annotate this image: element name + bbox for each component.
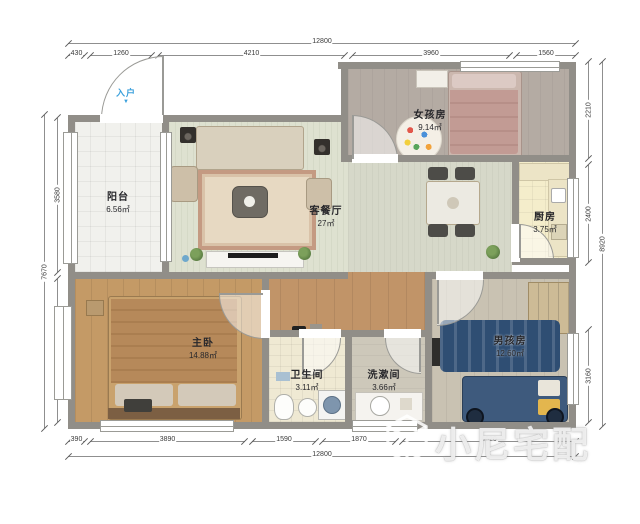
dim-right-seg2: 2400 (588, 165, 589, 262)
kitchen-sink (551, 188, 566, 203)
dim-right-seg3: 3160 (588, 330, 589, 422)
master-door-leaf (219, 293, 263, 295)
dim-top-total: 12800 (68, 43, 576, 44)
boy-door-opening (436, 271, 483, 280)
watermark: 小尼宅配 (384, 414, 591, 469)
dining-chair-sw (428, 224, 448, 237)
dim-bottom-seg1: 390 (68, 441, 85, 442)
dim-top-seg1: 430 (68, 55, 85, 56)
room-name: 男孩房 (478, 332, 542, 347)
master-door-opening (261, 290, 270, 338)
dining-table (426, 181, 480, 225)
dim-label: 12800 (311, 38, 332, 45)
dim-label: 2210 (586, 100, 593, 120)
dim-label: 3890 (159, 436, 177, 443)
room-name: 卫生间 (275, 366, 339, 381)
room-area: 27㎡ (294, 218, 358, 229)
hallway-floor (262, 272, 432, 337)
floor-plan-canvas: 12800 430 1260 4210 3960 1560 390 3890 1… (0, 0, 640, 524)
entry-label: 入户 ▼ (104, 86, 148, 105)
room-label-bath: 卫生间 3.11㎡ (275, 366, 339, 393)
entry-door-leaf (162, 57, 164, 115)
master-nightstand (86, 300, 104, 316)
dining-chair-se (455, 224, 475, 237)
entry-arrow-icon: ▼ (104, 99, 148, 105)
dining-chair-ne (455, 167, 475, 180)
bath-door-opening (299, 329, 341, 338)
master-bay-window (54, 306, 72, 400)
room-area: 3.66㎡ (352, 382, 416, 393)
dim-label: 12800 (311, 451, 332, 458)
room-name: 洗漱间 (352, 366, 416, 381)
room-area: 12.60㎡ (478, 348, 542, 359)
dim-label: 1870 (350, 436, 368, 443)
room-area: 14.88㎡ (171, 350, 235, 361)
wash-door-opening (384, 329, 421, 338)
dim-label: 430 (70, 50, 84, 57)
wall-bath-wash-divider (345, 337, 352, 422)
plant-dining (486, 245, 500, 259)
wall-wash-boy-divider (425, 279, 432, 422)
speaker-right (314, 139, 330, 155)
dim-label: 8920 (600, 234, 607, 254)
girl-top-window (460, 61, 560, 72)
dim-top-seg3: 4210 (158, 55, 345, 56)
dim-top-seg5: 1560 (516, 55, 576, 56)
coffee-table (232, 186, 268, 218)
plant-right (298, 247, 311, 260)
room-area: 3.11㎡ (275, 382, 339, 393)
room-label-balcony: 阳台 6.56㎡ (86, 188, 150, 215)
room-area: 3.75㎡ (513, 224, 577, 235)
dim-left-seg1: 3580 (57, 118, 58, 272)
room-name: 女孩房 (398, 106, 462, 121)
wall-kitchen-bottom (512, 258, 576, 265)
wall-hallway-top (269, 272, 348, 279)
dim-label: 2400 (586, 204, 593, 224)
dim-bottom-seg2: 3890 (90, 441, 245, 442)
girl-door-opening (352, 154, 398, 163)
balcony-sliding-window (160, 132, 172, 262)
toilet (274, 394, 294, 420)
bath-sink (298, 398, 317, 417)
dim-right-seg1: 2210 (588, 62, 589, 158)
bath-washing-machine (318, 390, 346, 420)
wash-sink (370, 396, 390, 416)
master-pillow-right (178, 384, 236, 406)
room-label-girl: 女孩房 9.14㎡ (398, 106, 462, 133)
dining-table-setting (447, 197, 459, 209)
room-label-boy: 男孩房 12.60㎡ (478, 332, 542, 359)
dim-label: 1260 (112, 50, 130, 57)
sofa (196, 126, 304, 170)
girl-door-leaf (352, 115, 354, 159)
dim-label: 7670 (42, 262, 49, 282)
boy-pillow-white (538, 380, 560, 396)
balcony-window (63, 132, 78, 264)
room-name: 客餐厅 (294, 202, 358, 217)
girl-bed-pillow (452, 74, 516, 88)
master-bench (124, 399, 152, 412)
room-name: 厨房 (513, 208, 577, 223)
dim-bottom-seg3: 1590 (252, 441, 316, 442)
boy-window (567, 333, 579, 405)
watermark-text: 小尼宅配 (435, 416, 591, 468)
boy-door-leaf (437, 280, 439, 324)
wash-door-leaf (419, 338, 421, 372)
room-name: 阳台 (86, 188, 150, 203)
wall-master-top (68, 272, 269, 279)
girl-dresser (416, 70, 448, 88)
dim-top-seg4: 3960 (352, 55, 510, 56)
dim-label: 4210 (243, 50, 261, 57)
entry-text: 入户 (104, 86, 148, 99)
plant-left (190, 248, 203, 261)
dim-top-seg2: 1260 (90, 55, 152, 56)
entry-door-opening (100, 114, 163, 123)
dim-right-total: 8920 (602, 62, 603, 426)
room-label-master: 主卧 14.88㎡ (171, 334, 235, 361)
dim-label: 1560 (537, 50, 555, 57)
room-label-wash: 洗漱间 3.66㎡ (352, 366, 416, 393)
dim-label: 3160 (586, 366, 593, 386)
dim-label: 3580 (55, 185, 62, 205)
tv (228, 253, 278, 258)
wall-living-girl-divider (341, 62, 348, 162)
dim-left-total: 7670 (44, 115, 45, 428)
armchair-left (170, 166, 198, 202)
room-label-kitchen: 厨房 3.75㎡ (513, 208, 577, 235)
room-area: 6.56㎡ (86, 204, 150, 215)
dim-label: 1590 (275, 436, 293, 443)
watermark-cube-icon (384, 414, 430, 469)
master-bottom-window (100, 420, 234, 432)
dim-label: 3960 (422, 50, 440, 57)
room-area: 9.14㎡ (398, 122, 462, 133)
dining-chair-nw (428, 167, 448, 180)
dim-label: 390 (70, 436, 84, 443)
sofa-pillows (199, 129, 301, 145)
coffee-table-tray (244, 196, 255, 207)
room-name: 主卧 (171, 334, 235, 349)
washing-machine-drum (323, 396, 341, 414)
room-label-living: 客餐厅 27㎡ (294, 202, 358, 229)
speaker-left (180, 127, 196, 143)
blue-vase (182, 255, 189, 262)
wash-shelf-item (400, 398, 412, 410)
